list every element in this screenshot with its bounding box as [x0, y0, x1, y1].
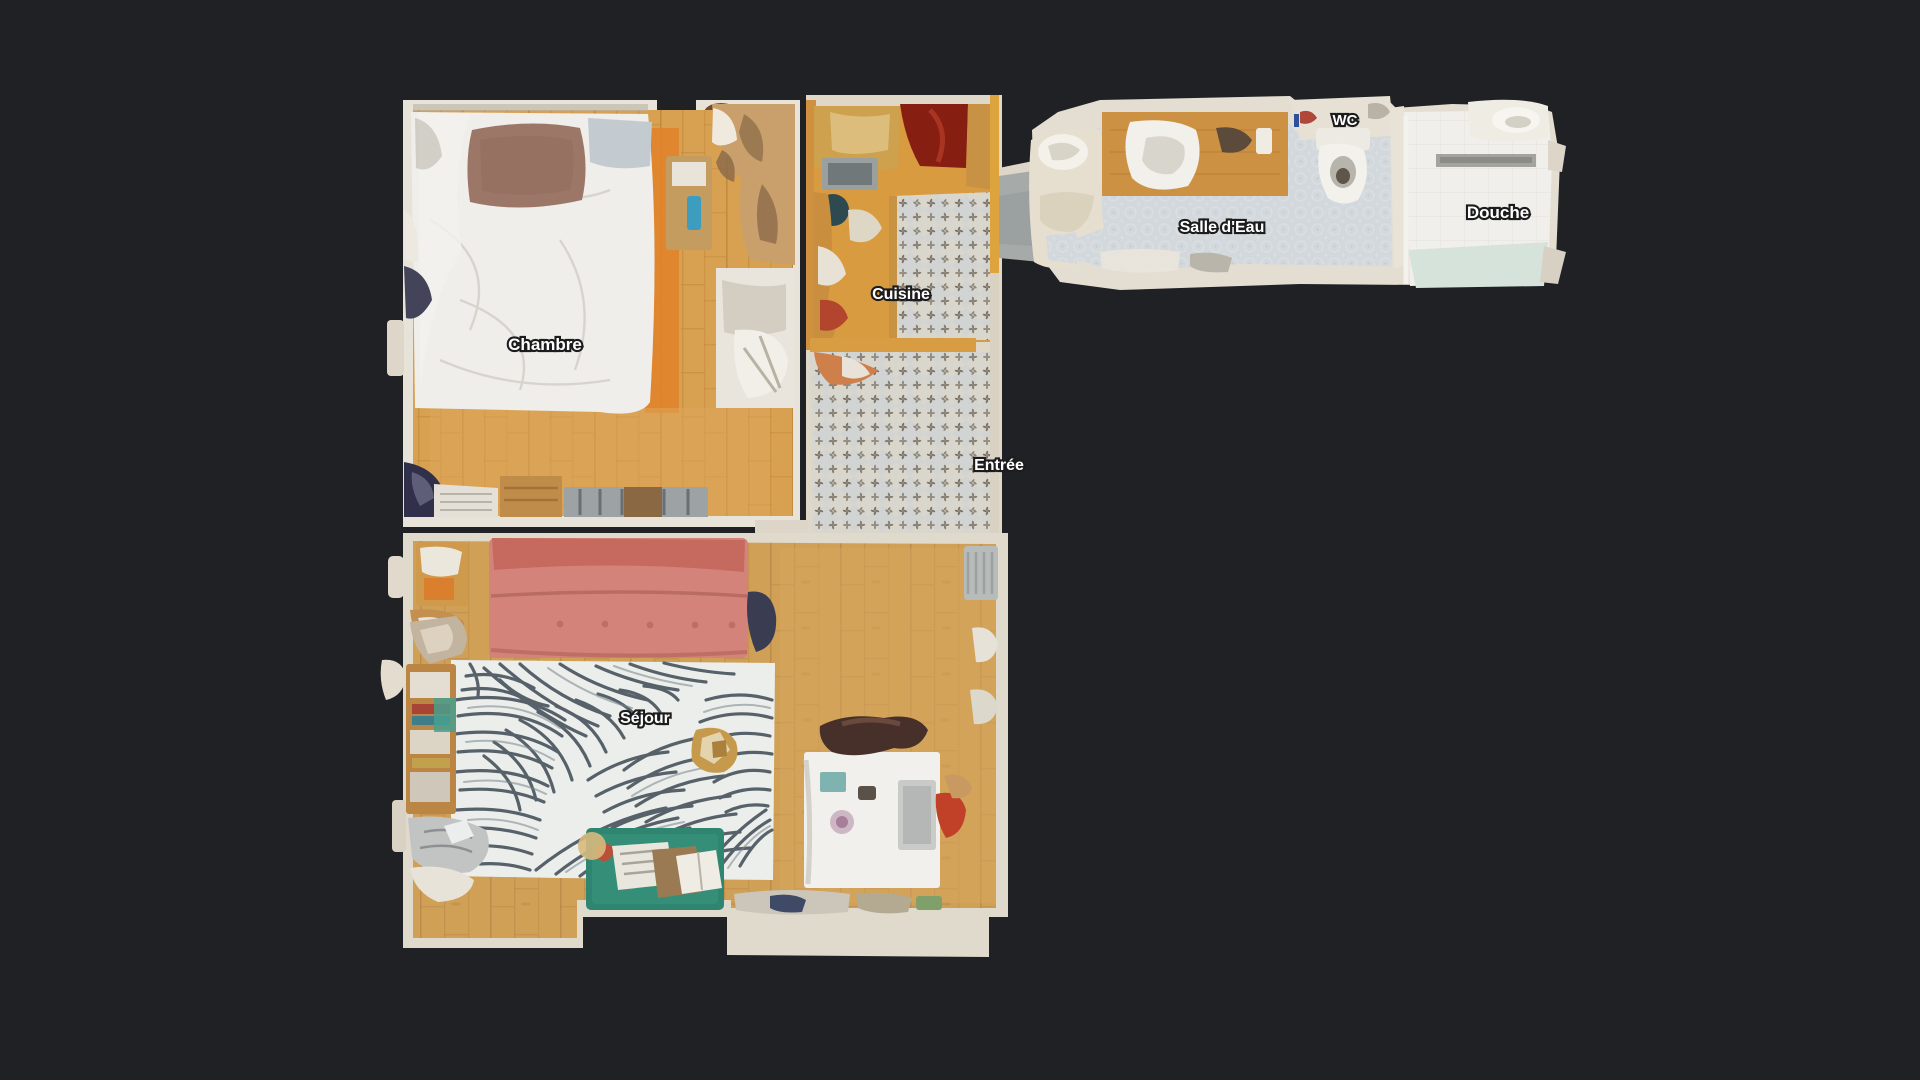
- svg-text:Séjour: Séjour: [620, 710, 670, 727]
- svg-text:Salle d'Eau: Salle d'Eau: [1180, 219, 1265, 236]
- svg-text:WC: WC: [1333, 112, 1358, 129]
- svg-text:Entrée: Entrée: [974, 457, 1024, 474]
- svg-text:Chambre: Chambre: [508, 335, 582, 354]
- svg-text:Cuisine: Cuisine: [872, 286, 930, 303]
- svg-text:Douche: Douche: [1467, 203, 1529, 222]
